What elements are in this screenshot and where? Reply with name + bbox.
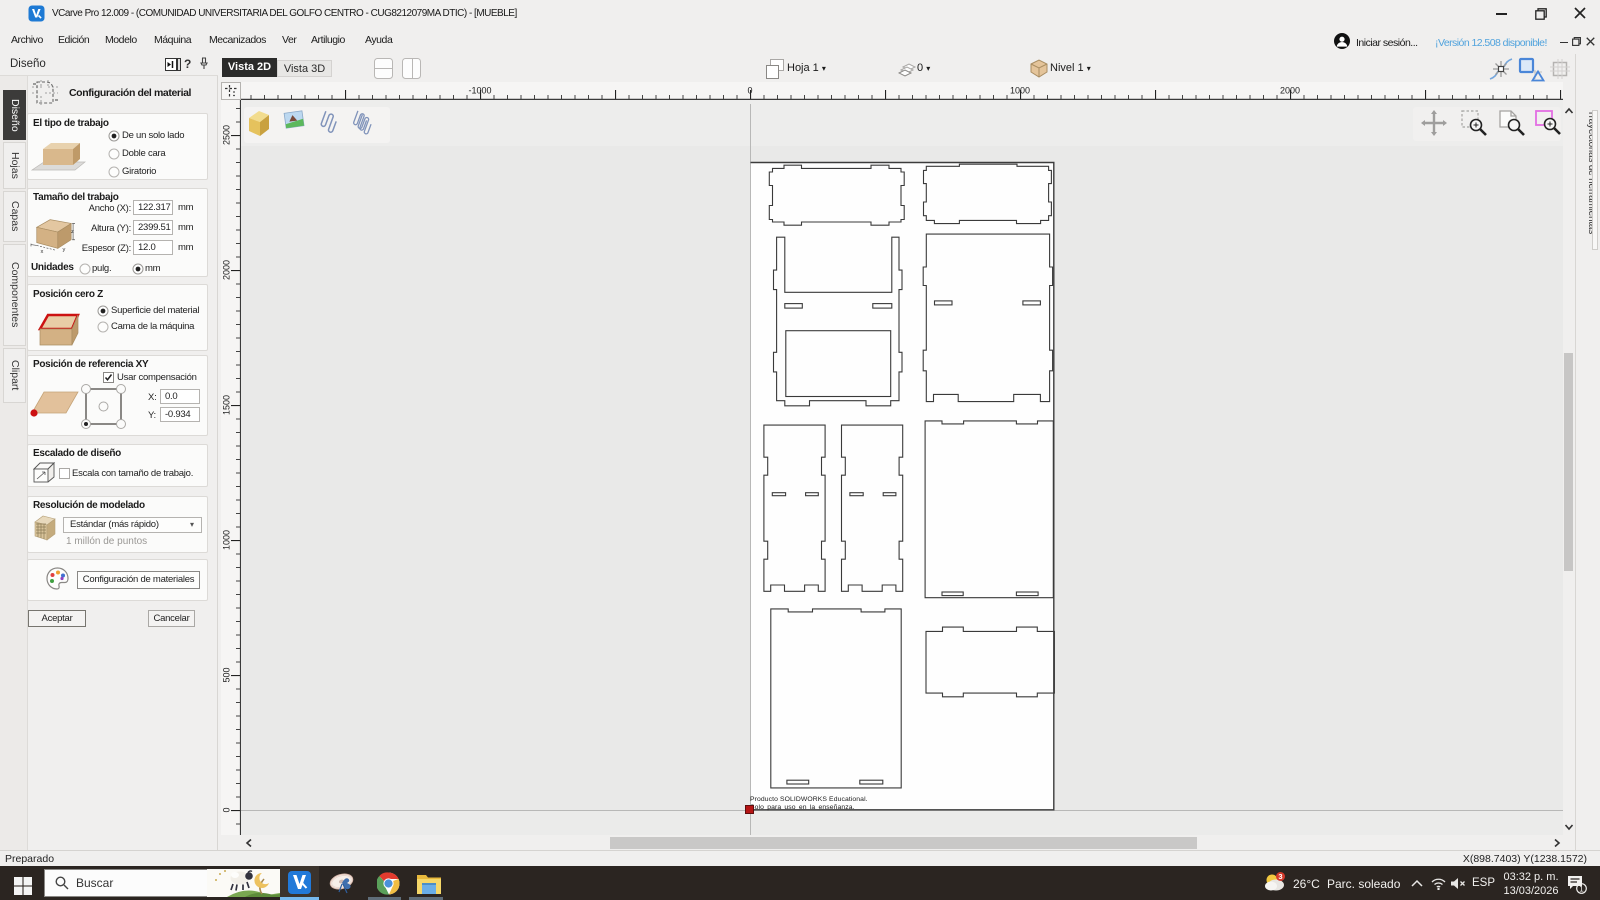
svg-text:2500: 2500 <box>222 125 232 145</box>
svg-text:1000: 1000 <box>1010 86 1030 96</box>
svg-text:x: x <box>41 249 44 255</box>
svg-text:3: 3 <box>1278 872 1282 881</box>
svg-text:2000: 2000 <box>1280 86 1300 96</box>
svg-text:1: 1 <box>1579 885 1584 894</box>
svg-text:1000: 1000 <box>222 530 232 550</box>
svg-text:y: y <box>63 247 66 253</box>
svg-text:500: 500 <box>222 667 232 682</box>
svg-text:0: 0 <box>222 807 232 812</box>
svg-text:Solo para uso en la enseñanza.: Solo para uso en la enseñanza. <box>750 804 855 811</box>
svg-text:0: 0 <box>747 86 752 96</box>
svg-text:2000: 2000 <box>222 260 232 280</box>
svg-text:1500: 1500 <box>222 395 232 415</box>
svg-text:z: z <box>71 229 74 235</box>
svg-text:-1000: -1000 <box>468 86 491 96</box>
svg-text:Producto SOLIDWORKS Educationa: Producto SOLIDWORKS Educational. <box>750 796 868 803</box>
